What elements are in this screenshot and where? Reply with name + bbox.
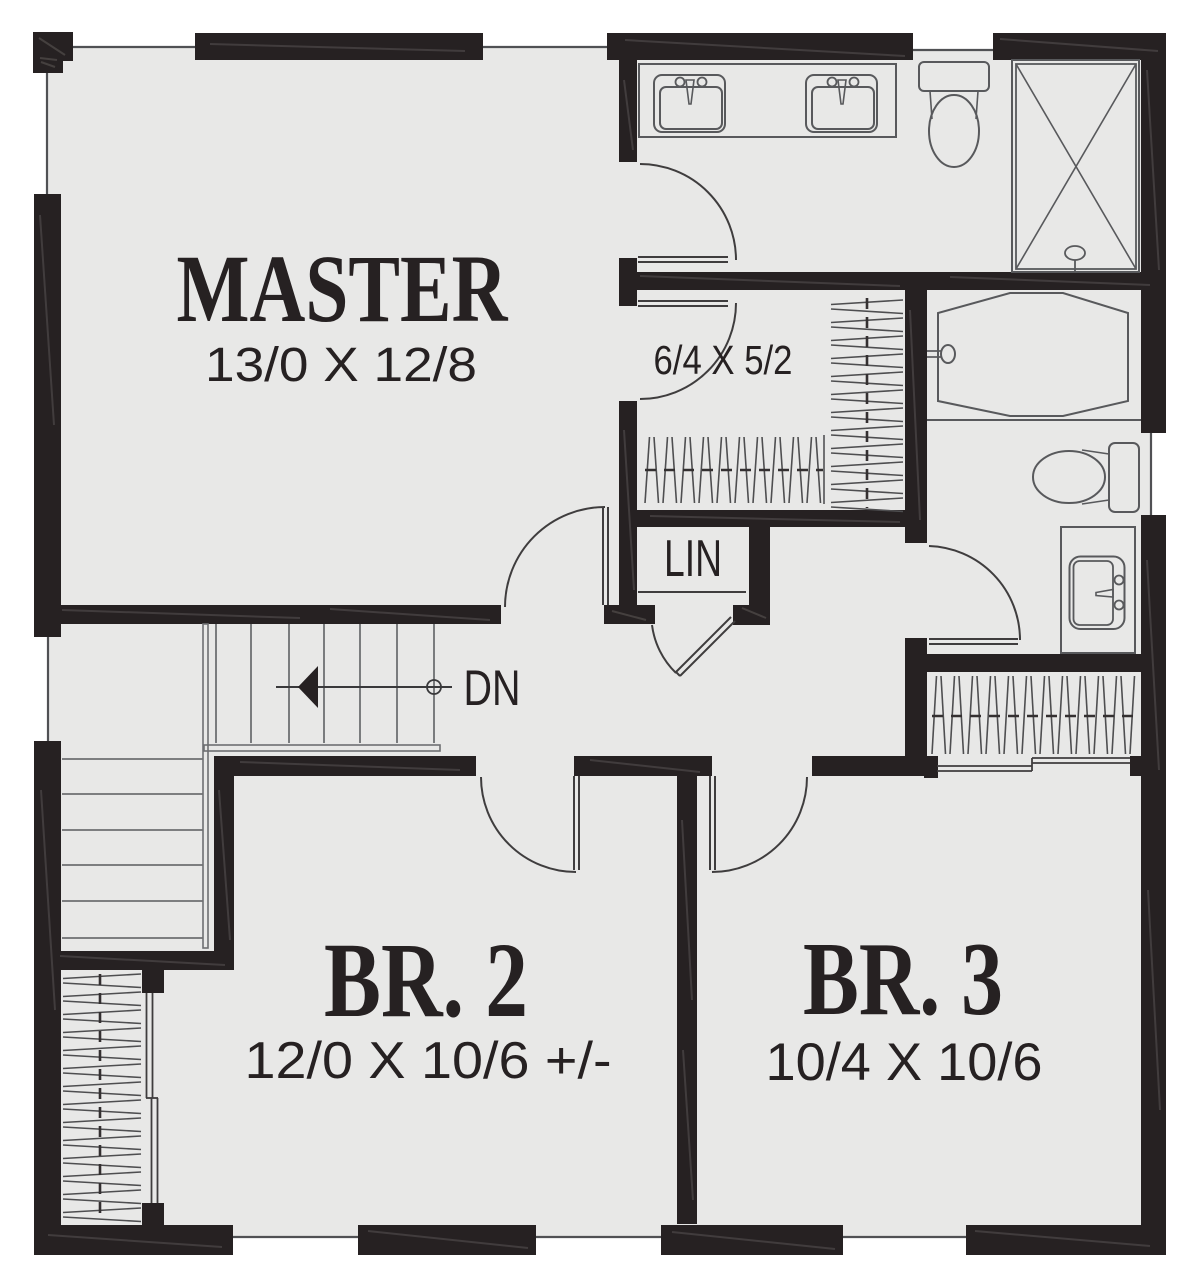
- svg-text:BR. 3: BR. 3: [803, 920, 1003, 1037]
- svg-text:BR. 2: BR. 2: [324, 922, 528, 1040]
- svg-text:10/4 X 10/6: 10/4 X 10/6: [766, 1033, 1043, 1092]
- svg-text:DN: DN: [464, 660, 521, 716]
- svg-text:6/4 X 5/2: 6/4 X 5/2: [654, 337, 793, 383]
- svg-text:MASTER: MASTER: [177, 235, 509, 342]
- svg-text:13/0 X 12/8: 13/0 X 12/8: [205, 339, 477, 392]
- svg-text:12/0 X 10/6 +/-: 12/0 X 10/6 +/-: [245, 1032, 612, 1090]
- svg-text:LIN: LIN: [664, 530, 722, 588]
